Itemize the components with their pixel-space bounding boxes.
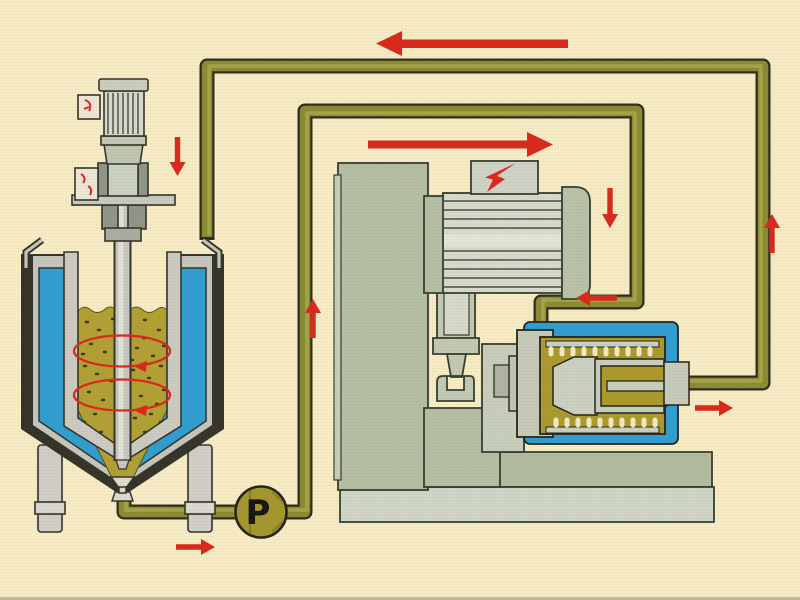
tank-leg-left: [38, 445, 62, 532]
circulation-pump: P: [236, 487, 287, 538]
tank-leg-right: [188, 445, 212, 532]
mill-base-plate: [340, 487, 714, 522]
coupling-neck: [447, 354, 466, 377]
tank-leg-right-collar: [185, 502, 215, 514]
stator-bar-bottom: [546, 427, 659, 433]
motor-band: [101, 136, 146, 145]
grinding-chamber: [509, 322, 689, 444]
coupling-collar: [433, 338, 479, 354]
valve-stem: [119, 487, 126, 493]
stator-bar-top: [546, 341, 659, 347]
diagram-canvas: P: [0, 0, 800, 600]
inlet-funnel: [553, 357, 597, 415]
outlet-block: [664, 362, 689, 405]
motor-terminal-box: [471, 161, 538, 194]
motor-foot-right: [138, 163, 148, 196]
motor-foot-left: [98, 163, 108, 196]
mill-column-edge: [334, 175, 341, 480]
agitator-motor-cap: [99, 79, 148, 91]
tank-leg-left-collar: [35, 502, 65, 514]
mill-motor-midband: [444, 234, 561, 247]
mill-motor-endcap: [562, 187, 590, 299]
mill-column: [338, 163, 428, 490]
process-diagram: P: [0, 0, 800, 600]
agitator-indicator-box-lower: [75, 168, 98, 200]
agitator-shaft-highlight: [119, 205, 124, 460]
motor-taper-housing: [104, 144, 143, 164]
coupling-block-right: [128, 205, 146, 229]
pump-label: P: [246, 493, 271, 533]
coupling-collar: [105, 228, 141, 241]
separator-slot: [607, 381, 667, 391]
agitator-motor-fins: [108, 93, 138, 134]
motor-lower-housing: [108, 163, 138, 196]
agitator-shaft-tip: [116, 460, 129, 469]
coupling-block-left: [102, 205, 118, 229]
mill-base-riser: [497, 452, 712, 487]
